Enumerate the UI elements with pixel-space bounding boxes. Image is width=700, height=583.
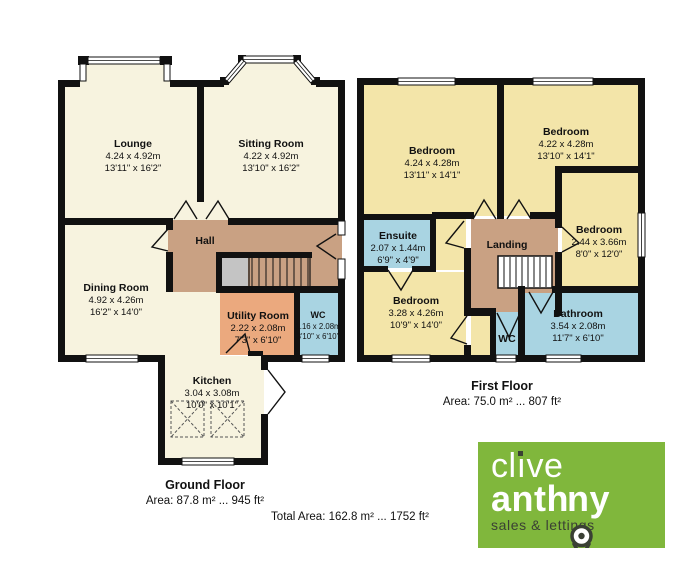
kitchen-metric-label: 3.04 x 3.08m [185, 388, 240, 399]
bedroom4-metric-label: 3.28 x 4.26m [389, 308, 444, 319]
bedroom3-imperial-label: 8'0" x 12'0" [576, 249, 623, 260]
first-floor-plan: Bedroom 4.24 x 4.28m 13'11" x 14'1" Bedr… [357, 78, 645, 408]
brand2-pre: anth [491, 482, 569, 516]
utility-name-label: Utility Room [227, 310, 289, 322]
bedroom4-imperial-label: 10'9" x 14'0" [390, 320, 442, 331]
first-floor-area: Area: 75.0 m² ... 807 ft² [443, 396, 561, 408]
i-dot [518, 451, 523, 456]
utility-metric-label: 2.22 x 2.08m [231, 323, 286, 334]
bedroom1-window [398, 78, 455, 85]
bedroom3-name-label: Bedroom [576, 224, 622, 236]
bathroom-imperial-label: 11'7" x 6'10" [552, 333, 603, 344]
bedroom4-name-label: Bedroom [393, 295, 439, 307]
wc-imperial-label: 3'10" x 6'10" [297, 332, 340, 341]
ground-floor-title: Ground Floor [165, 478, 245, 492]
bedroom2-name-label: Bedroom [543, 126, 589, 138]
bedroom2-window [533, 78, 593, 85]
bedroom2-imperial-label: 13'10" x 14'1" [537, 151, 594, 162]
lounge-metric-label: 4.24 x 4.92m [106, 151, 161, 162]
sitting-imperial-label: 13'10" x 16'2" [242, 163, 299, 174]
floorplan-page: Lounge 4.24 x 4.92m 13'11" x 16'2" Sitti… [0, 0, 700, 583]
dining-name-label: Dining Room [83, 282, 148, 294]
first-wc-name-label: WC [498, 333, 516, 345]
lounge-name-label: Lounge [114, 138, 152, 150]
first-stairs [498, 256, 552, 288]
brand2-post: ny [567, 482, 610, 516]
hall-name-label: Hall [195, 235, 214, 247]
bathroom-name-label: Bathroom [553, 308, 603, 320]
wc-window [302, 355, 329, 362]
bathroom-window [546, 355, 581, 362]
brand1-i: ı [517, 450, 527, 482]
brand-line2: anthny [491, 482, 665, 516]
kitchen-name-label: Kitchen [193, 375, 232, 387]
bedroom3-window [638, 213, 645, 257]
bedroom1-name-label: Bedroom [409, 145, 455, 157]
wc-metric-label: 1.16 x 2.08m [295, 322, 340, 331]
utility-imperial-label: 7'3" x 6'10" [235, 335, 282, 346]
bedroom4-nook [471, 312, 492, 358]
first-wc-window [496, 355, 516, 362]
sitting-name-label: Sitting Room [238, 138, 303, 150]
bedroom1-metric-label: 4.24 x 4.28m [405, 158, 460, 169]
bedroom4-window [392, 355, 430, 362]
wc-name-label: WC [311, 310, 326, 320]
sitting-metric-label: 4.22 x 4.92m [244, 151, 299, 162]
ensuite-imperial-label: 6'9" x 4'9" [377, 255, 419, 266]
ensuite-name-label: Ensuite [379, 230, 417, 242]
total-area-label: Total Area: 162.8 m² ... 1752 ft² [271, 511, 429, 523]
dining-window [86, 355, 138, 362]
bedroom3-metric-label: 2.44 x 3.66m [572, 237, 627, 248]
dining-metric-label: 4.92 x 4.26m [89, 295, 144, 306]
bedroom1-imperial-label: 13'11" x 14'1" [404, 170, 461, 181]
landing-name-label: Landing [487, 239, 528, 251]
bedroom2-metric-label: 4.22 x 4.28m [539, 139, 594, 150]
ground-floor-area: Area: 87.8 m² ... 945 ft² [146, 495, 264, 507]
kitchen-imperial-label: 10'0" x 10'1" [186, 400, 238, 411]
agency-logo: clıve anthny sales & lettings [478, 442, 665, 548]
ground-floor-plan: Lounge 4.24 x 4.92m 13'11" x 16'2" Sitti… [58, 55, 345, 507]
lounge-imperial-label: 13'11" x 16'2" [105, 163, 162, 174]
kitchen-window [182, 458, 234, 465]
dining-imperial-label: 16'2" x 14'0" [90, 307, 142, 318]
kitchen-french-doors [268, 370, 285, 414]
dining-room-notch [168, 290, 220, 358]
bathroom-metric-label: 3.54 x 2.08m [551, 321, 606, 332]
ensuite-metric-label: 2.07 x 1.44m [371, 243, 426, 254]
first-floor-title: First Floor [471, 379, 533, 393]
